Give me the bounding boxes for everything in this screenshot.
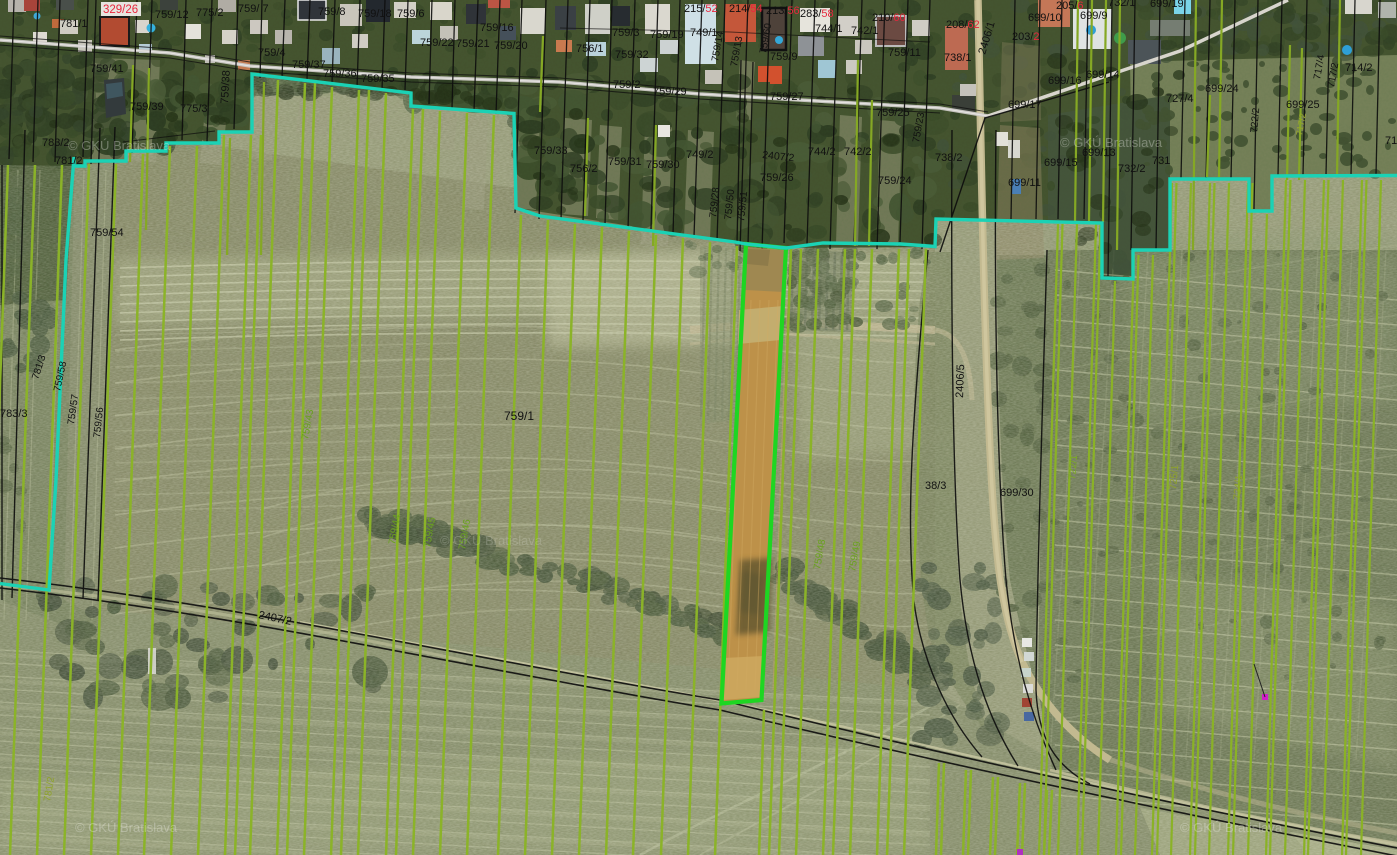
svg-text:2406/5: 2406/5 [954, 364, 967, 398]
svg-text:699/16: 699/16 [1048, 75, 1082, 87]
svg-text:732/1: 732/1 [1108, 0, 1136, 9]
svg-text:205/6: 205/6 [1056, 0, 1084, 12]
svg-text:759/31: 759/31 [608, 156, 642, 168]
svg-text:699/9: 699/9 [1080, 10, 1108, 22]
svg-text:781/2: 781/2 [55, 155, 83, 167]
svg-text:38/3: 38/3 [925, 480, 946, 492]
svg-text:759/38: 759/38 [219, 70, 233, 104]
svg-text:759/9: 759/9 [770, 51, 798, 63]
svg-text:208/62: 208/62 [946, 19, 980, 31]
svg-text:781/1: 781/1 [60, 18, 88, 30]
svg-text:759/41: 759/41 [90, 63, 124, 75]
svg-text:759/4: 759/4 [258, 47, 286, 59]
svg-text:759/20: 759/20 [494, 40, 528, 52]
svg-text:699/14: 699/14 [1086, 69, 1120, 81]
svg-text:738/2: 738/2 [935, 152, 963, 164]
svg-text:699/17: 699/17 [1008, 99, 1042, 111]
svg-text:699/19: 699/19 [1150, 0, 1184, 10]
svg-text:329/26: 329/26 [103, 4, 138, 16]
svg-text:775/3: 775/3 [180, 103, 208, 115]
svg-text:210/60: 210/60 [872, 12, 906, 24]
svg-text:714/2: 714/2 [1345, 62, 1373, 74]
svg-text:783/3: 783/3 [0, 408, 28, 420]
svg-text:742/2: 742/2 [844, 146, 872, 158]
svg-text:725/1: 725/1 [1168, 464, 1181, 490]
svg-text:213/56: 213/56 [766, 5, 800, 17]
svg-text:732/2: 732/2 [1118, 163, 1146, 175]
svg-text:759/24: 759/24 [878, 175, 912, 187]
svg-text:756/1: 756/1 [576, 43, 604, 55]
svg-text:759/18: 759/18 [358, 8, 392, 20]
svg-text:759/22: 759/22 [420, 37, 454, 49]
svg-text:759/19: 759/19 [650, 29, 684, 41]
svg-text:71: 71 [1385, 135, 1397, 147]
svg-text:699/11: 699/11 [1008, 177, 1041, 189]
svg-text:759/2: 759/2 [613, 79, 641, 91]
svg-text:759/39: 759/39 [130, 101, 164, 113]
svg-text:759/29: 759/29 [653, 86, 687, 98]
svg-text:724/1: 724/1 [1232, 474, 1245, 500]
svg-text:© GKÚ Bratislava: © GKÚ Bratislava [440, 533, 543, 548]
svg-text:759/26: 759/26 [760, 172, 794, 184]
svg-text:759/12: 759/12 [155, 9, 189, 21]
svg-text:215/52: 215/52 [684, 3, 718, 15]
svg-text:759/54: 759/54 [90, 227, 124, 239]
svg-text:759/21: 759/21 [456, 38, 490, 50]
svg-text:© GKÚ Bratislava: © GKÚ Bratislava [1060, 135, 1163, 150]
svg-text:699/10: 699/10 [1028, 12, 1062, 24]
svg-text:722/2: 722/2 [1249, 107, 1262, 133]
svg-text:744/1: 744/1 [815, 23, 843, 35]
svg-text:727/4: 727/4 [1166, 93, 1194, 105]
svg-text:203/2: 203/2 [1012, 31, 1040, 43]
svg-text:759/1: 759/1 [504, 409, 534, 423]
svg-text:759/35: 759/35 [361, 73, 395, 85]
svg-text:© GKÚ Bratislava: © GKÚ Bratislava [1180, 820, 1283, 835]
svg-text:699/15: 699/15 [1044, 157, 1078, 169]
svg-text:759/11: 759/11 [888, 47, 921, 59]
svg-text:759/25: 759/25 [876, 107, 910, 119]
svg-text:759/8: 759/8 [318, 6, 346, 18]
svg-text:© GKÚ Bratislava: © GKÚ Bratislava [68, 138, 171, 153]
svg-text:783/2: 783/2 [42, 137, 70, 149]
svg-text:759/6: 759/6 [397, 8, 425, 20]
svg-text:699/30: 699/30 [1000, 487, 1034, 499]
svg-text:699/25: 699/25 [1286, 99, 1320, 111]
svg-text:© GKÚ Bratislava: © GKÚ Bratislava [75, 820, 178, 835]
svg-text:759/37: 759/37 [292, 59, 326, 71]
svg-text:759/ 7: 759/ 7 [238, 3, 269, 15]
svg-text:283/58: 283/58 [800, 8, 834, 20]
svg-text:756/2: 756/2 [570, 163, 598, 175]
svg-text:759/16: 759/16 [480, 22, 514, 34]
svg-text:214/54: 214/54 [729, 3, 763, 15]
svg-text:775/2: 775/2 [196, 7, 224, 19]
svg-text:759/33: 759/33 [534, 145, 568, 157]
svg-text:742/1: 742/1 [851, 25, 879, 37]
svg-text:759/36: 759/36 [323, 68, 357, 80]
svg-text:759/3: 759/3 [612, 27, 640, 39]
svg-text:759/30: 759/30 [646, 159, 680, 171]
svg-text:759/32: 759/32 [615, 49, 649, 61]
svg-text:699/24: 699/24 [1205, 83, 1239, 95]
svg-text:738/1: 738/1 [944, 52, 972, 64]
svg-text:731: 731 [1152, 155, 1170, 167]
svg-text:759/27: 759/27 [770, 91, 804, 103]
svg-text:722/1: 722/1 [1067, 454, 1080, 480]
svg-text:744/2: 744/2 [808, 146, 836, 158]
svg-text:749/2: 749/2 [686, 149, 714, 161]
